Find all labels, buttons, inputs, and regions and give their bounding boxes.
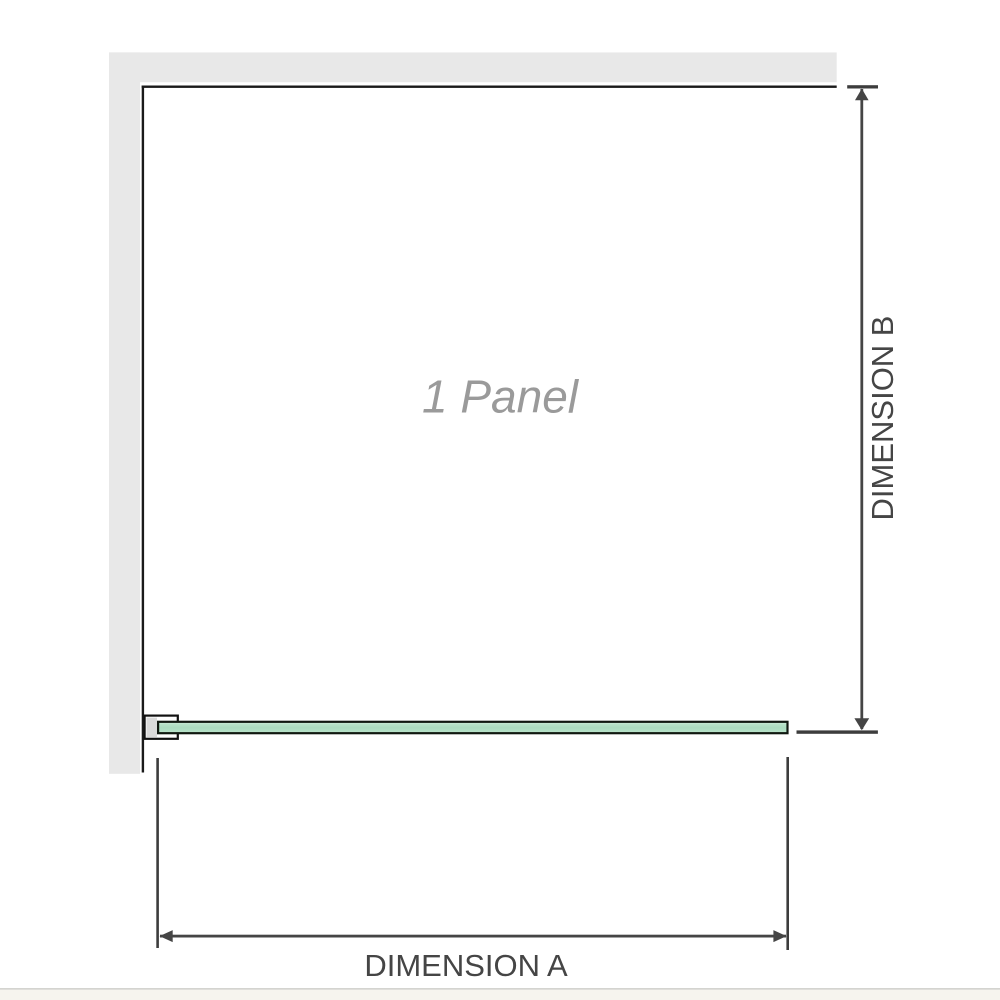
svg-text:DIMENSION B: DIMENSION B <box>865 316 900 521</box>
svg-text:1 Panel: 1 Panel <box>422 371 580 423</box>
svg-text:DIMENSION A: DIMENSION A <box>364 948 568 983</box>
